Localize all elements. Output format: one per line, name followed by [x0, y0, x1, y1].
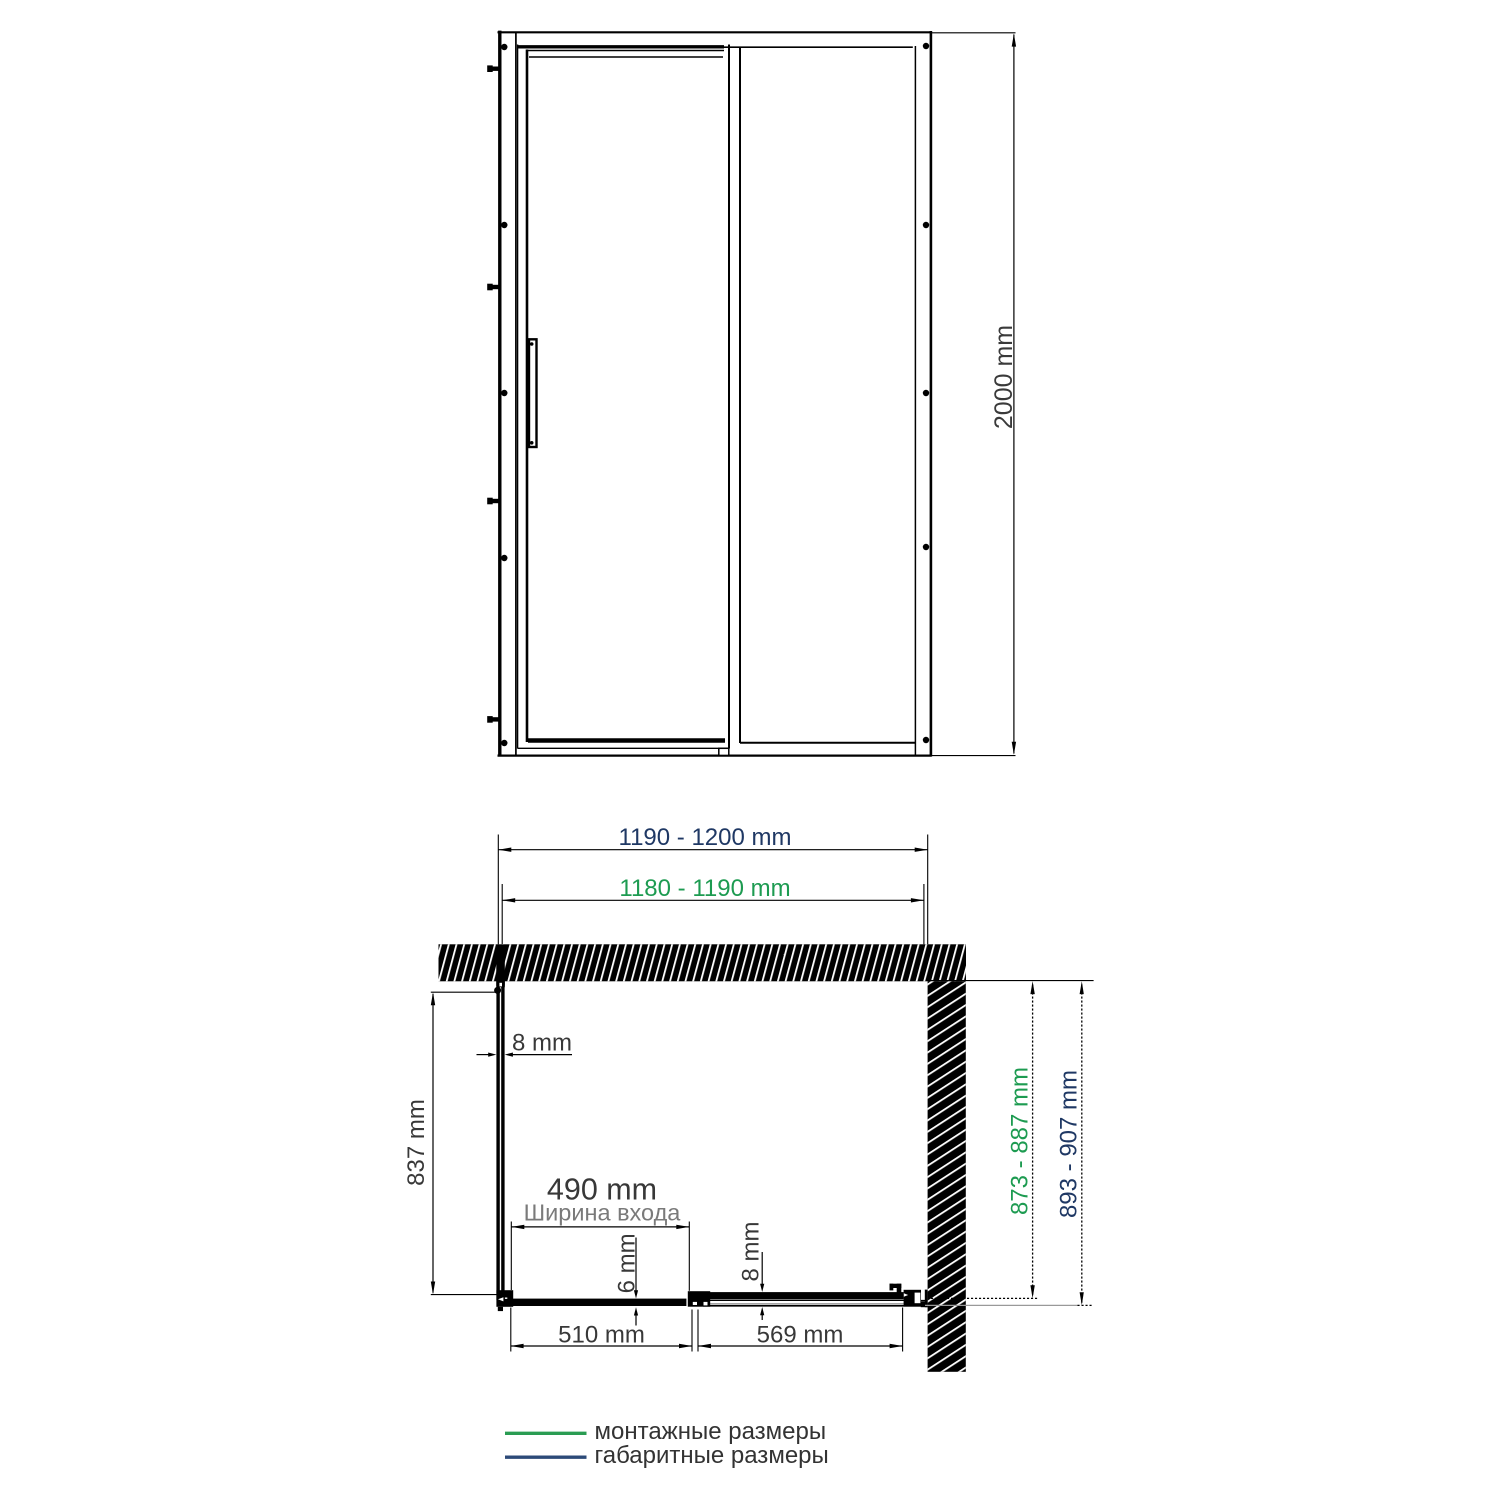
svg-text:893 - 907 mm: 893 - 907 mm	[1055, 1070, 1082, 1218]
svg-text:873 - 887 mm: 873 - 887 mm	[1006, 1067, 1033, 1215]
svg-text:1180 - 1190 mm: 1180 - 1190 mm	[619, 875, 790, 902]
svg-text:8 mm: 8 mm	[512, 1029, 572, 1056]
svg-text:837 mm: 837 mm	[403, 1099, 430, 1186]
svg-text:510 mm: 510 mm	[558, 1322, 645, 1349]
svg-text:1190 - 1200 mm: 1190 - 1200 mm	[619, 824, 792, 851]
svg-text:2000 mm: 2000 mm	[990, 325, 1018, 429]
svg-text:Ширина входа: Ширина входа	[524, 1200, 682, 1226]
svg-text:габаритные размеры: габаритные размеры	[595, 1442, 829, 1469]
svg-text:8 mm: 8 mm	[737, 1222, 764, 1282]
svg-text:569 mm: 569 mm	[757, 1322, 844, 1349]
